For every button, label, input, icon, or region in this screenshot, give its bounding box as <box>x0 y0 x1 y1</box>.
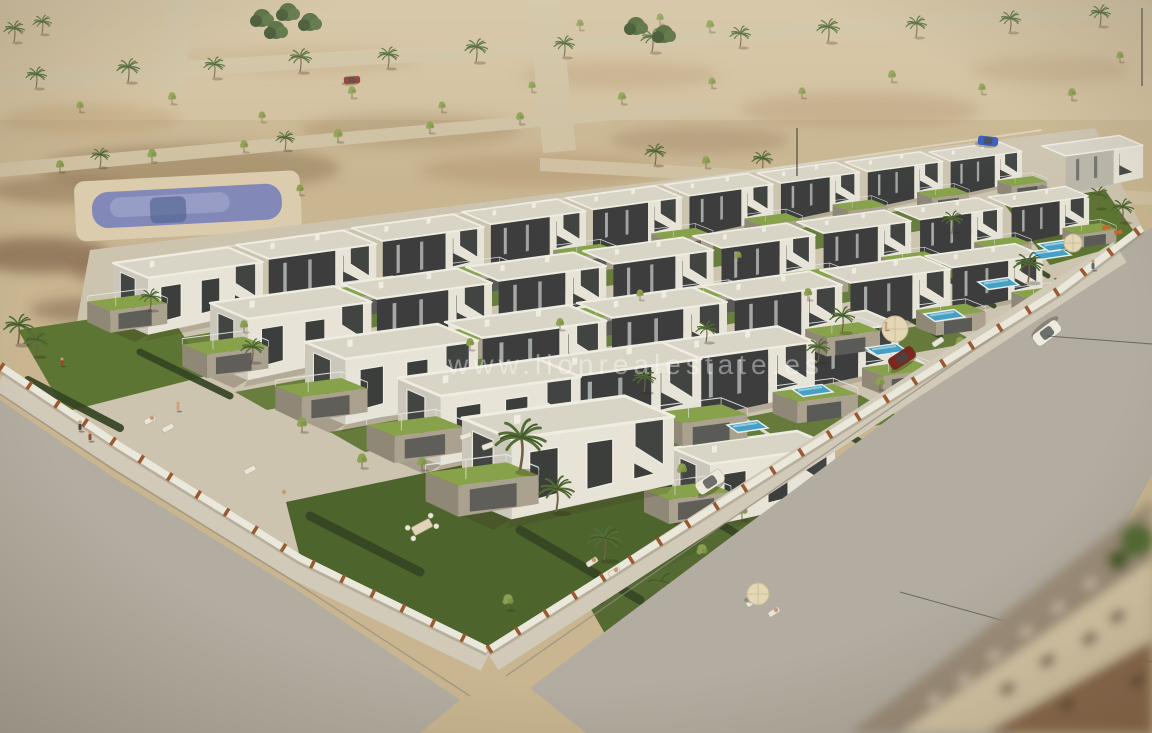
scene-canvas: www.lionrealestate.es <box>0 0 1152 733</box>
aerial-render-image: www.lionrealestate.es <box>0 0 1152 733</box>
watermark-text: www.lionrealestate.es <box>447 349 824 380</box>
